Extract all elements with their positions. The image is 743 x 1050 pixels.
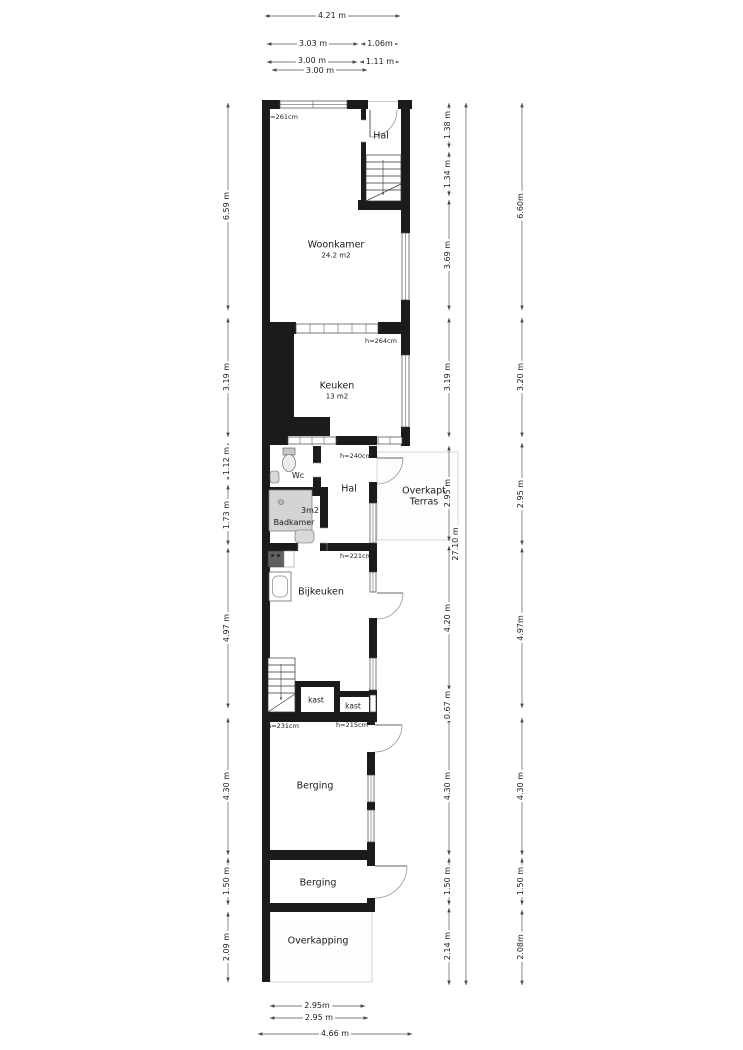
- badkamer-sink-icon: [295, 530, 314, 543]
- height-label-woonkamer: h=261cm: [266, 114, 298, 121]
- bijkeuken-door: [377, 593, 403, 619]
- dim-right-total: 27.10 m: [452, 525, 460, 562]
- dim-top-1: 4.21 m: [316, 12, 348, 20]
- area-label-badkamer: 3m2: [301, 507, 319, 515]
- dim-right-inner-10: 2.14 m: [444, 930, 452, 962]
- room-label-overkapping: Overkapping: [288, 936, 349, 946]
- dim-right-outer-7: 2.08m: [517, 932, 525, 962]
- room-label-terras-1: Overkapt: [402, 486, 446, 496]
- washer-icon: [269, 572, 291, 601]
- dim-bottom-1: 2.95m: [302, 1002, 332, 1010]
- staircase-top: [366, 155, 401, 201]
- dim-left-2: 3.19 m: [223, 361, 231, 393]
- berging2-door: [375, 866, 407, 898]
- dim-right-outer-4: 4.97m: [517, 613, 525, 643]
- room-label-kast-1: kast: [308, 696, 324, 704]
- floor-plan-page: 4.21 m 3.03 m 1.06m 3.00 m 1.11 m 3.00 m…: [0, 0, 743, 1050]
- kitchen-counter-icon: [268, 551, 294, 567]
- dim-right-inner-8: 4.30 m: [444, 770, 452, 802]
- dim-top-2: 3.03 m: [297, 40, 329, 48]
- room-label-badkamer: Badkamer: [274, 519, 315, 527]
- dim-right-inner-6: 4.20 m: [444, 602, 452, 634]
- room-label-hal-mid: Hal: [341, 484, 357, 494]
- height-label-berging-left: h=231cm: [267, 723, 299, 730]
- height-label-hal: h=240cm: [340, 453, 372, 460]
- dim-right-outer-3: 2.95 m: [517, 478, 525, 510]
- dim-right-outer-1: 6.60m: [517, 191, 525, 221]
- height-label-berging-right: h=215cm: [336, 722, 368, 729]
- dim-right-inner-2: 1.34 m: [444, 158, 452, 190]
- room-label-terras-2: Terras: [410, 497, 438, 507]
- dim-right-inner-7: 0.67 m: [444, 689, 452, 721]
- dim-right-inner-4: 3.19 m: [444, 361, 452, 393]
- dim-left-8: 2.09 m: [223, 931, 231, 963]
- berging1-door: [375, 725, 402, 752]
- room-label-hal-top: Hal: [373, 131, 389, 141]
- dim-bottom-3: 4.66 m: [319, 1030, 351, 1038]
- dim-right-outer-6: 1.50 m: [517, 865, 525, 897]
- overkapping-outline: [270, 911, 372, 982]
- dim-top-6: 3.00 m: [304, 67, 336, 75]
- room-label-berging-1: Berging: [297, 781, 334, 791]
- dim-left-5: 4.97 m: [223, 612, 231, 644]
- floor-plan-drawing: [0, 0, 743, 1050]
- dim-left-4: 1.73 m: [223, 499, 231, 531]
- dim-left-7: 1.50 m: [223, 865, 231, 897]
- dim-right-outer-5: 4.30 m: [517, 770, 525, 802]
- staircase-bottom: [268, 658, 295, 712]
- room-label-bijkeuken: Bijkeuken: [298, 587, 344, 597]
- room-label-berging-2: Berging: [300, 878, 337, 888]
- dim-left-1: 6.59 m: [223, 190, 231, 222]
- dim-bottom-2: 2.95 m: [303, 1014, 335, 1022]
- room-label-kast-2: kast: [345, 702, 361, 710]
- dim-top-3: 1.06m: [365, 40, 395, 48]
- wc-sink-icon: [270, 471, 279, 483]
- height-label-bijkeuken: h=221cm: [340, 553, 372, 560]
- dim-top-4: 3.00 m: [296, 57, 328, 65]
- dim-right-inner-9: 1.50 m: [444, 865, 452, 897]
- height-label-keuken: h=264cm: [365, 338, 397, 345]
- toilet-icon: [283, 448, 296, 472]
- dim-right-inner-1: 1.38 m: [444, 109, 452, 141]
- room-label-keuken: Keuken: [320, 381, 355, 391]
- dim-right-outer-2: 3.20 m: [517, 361, 525, 393]
- dim-top-5: 1.11 m: [364, 58, 396, 66]
- area-label-woonkamer: 24.2 m2: [321, 253, 350, 260]
- dim-left-3: 1.12 m: [223, 445, 231, 477]
- dim-right-inner-3: 3.69 m: [444, 239, 452, 271]
- walls: [262, 100, 412, 982]
- room-label-wc: Wc: [292, 472, 304, 480]
- dim-left-6: 4.30 m: [223, 770, 231, 802]
- area-label-keuken: 13 m2: [326, 394, 348, 401]
- room-label-woonkamer: Woonkamer: [308, 240, 365, 250]
